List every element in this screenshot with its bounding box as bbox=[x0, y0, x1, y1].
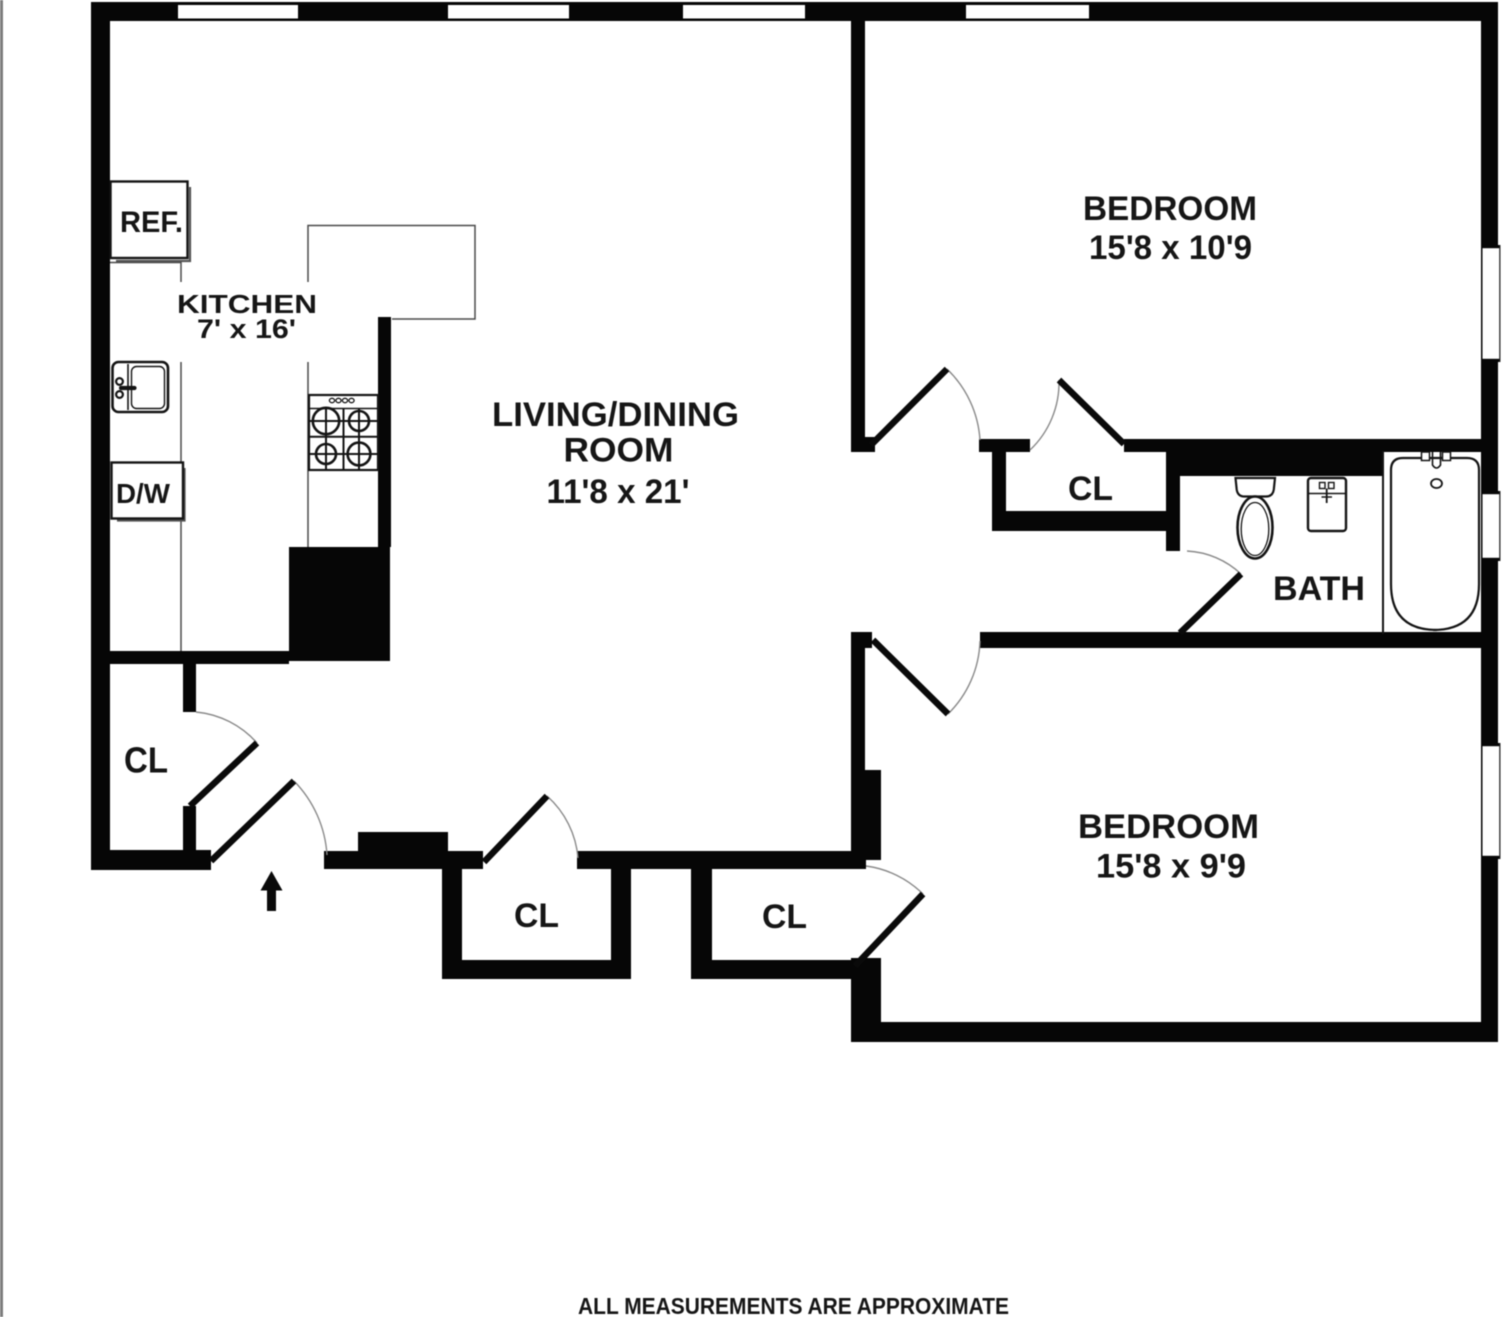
svg-text:11'8 x 21': 11'8 x 21' bbox=[547, 473, 690, 511]
svg-text:D/W: D/W bbox=[116, 478, 171, 509]
svg-text:15'8 x 10'9: 15'8 x 10'9 bbox=[1089, 229, 1252, 267]
svg-text:CL: CL bbox=[514, 897, 559, 935]
svg-text:REF.: REF. bbox=[120, 206, 183, 239]
svg-text:LIVING/DINING: LIVING/DINING bbox=[492, 396, 739, 434]
svg-text:ROOM: ROOM bbox=[564, 432, 674, 470]
svg-text:BATH: BATH bbox=[1273, 570, 1365, 608]
svg-text:15'8 x 9'9: 15'8 x 9'9 bbox=[1096, 848, 1246, 886]
svg-text:ALL MEASUREMENTS ARE APPROXIMA: ALL MEASUREMENTS ARE APPROXIMATE bbox=[578, 1293, 1009, 1317]
svg-text:BEDROOM: BEDROOM bbox=[1083, 190, 1257, 228]
svg-text:7' x 16': 7' x 16' bbox=[197, 314, 296, 344]
svg-text:BEDROOM: BEDROOM bbox=[1078, 808, 1259, 846]
svg-text:CL: CL bbox=[124, 740, 168, 781]
svg-text:CL: CL bbox=[762, 898, 807, 936]
svg-text:CL: CL bbox=[1068, 470, 1113, 508]
